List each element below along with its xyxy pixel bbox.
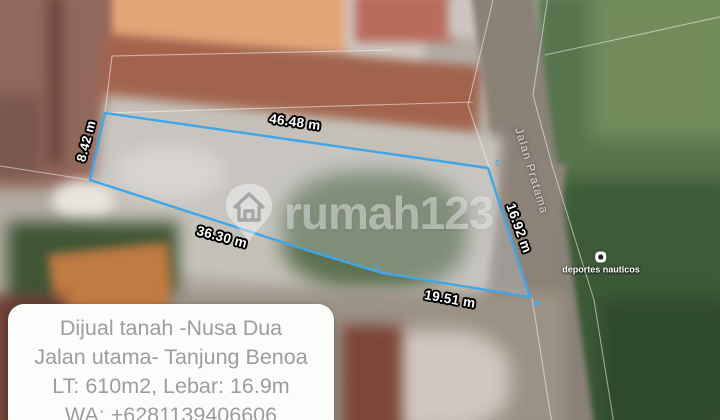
listing-photo: 5 3 rumah123 46.48 m 8.42 m 36.30 m 19.5… [0, 0, 720, 420]
poi-label: deportes nauticos [562, 265, 640, 275]
parcel-outline [90, 113, 530, 297]
listing-line-contact: WA: +6281139406606 [65, 401, 277, 420]
listing-line-location: Jalan utama- Tanjung Benoa [34, 343, 307, 372]
vertex-marker: 5 [495, 159, 500, 168]
vertex-arrow-icon [534, 300, 542, 307]
poi-marker-icon [595, 252, 606, 263]
listing-line-size: LT: 610m2, Lebar: 16.9m [52, 372, 289, 401]
poi-marker: deportes nauticos [562, 252, 640, 275]
listing-line-title: Dijual tanah -Nusa Dua [60, 314, 282, 343]
listing-info-card: Dijual tanah -Nusa Dua Jalan utama- Tanj… [8, 304, 334, 420]
vertex-marker: 3 [375, 264, 380, 273]
